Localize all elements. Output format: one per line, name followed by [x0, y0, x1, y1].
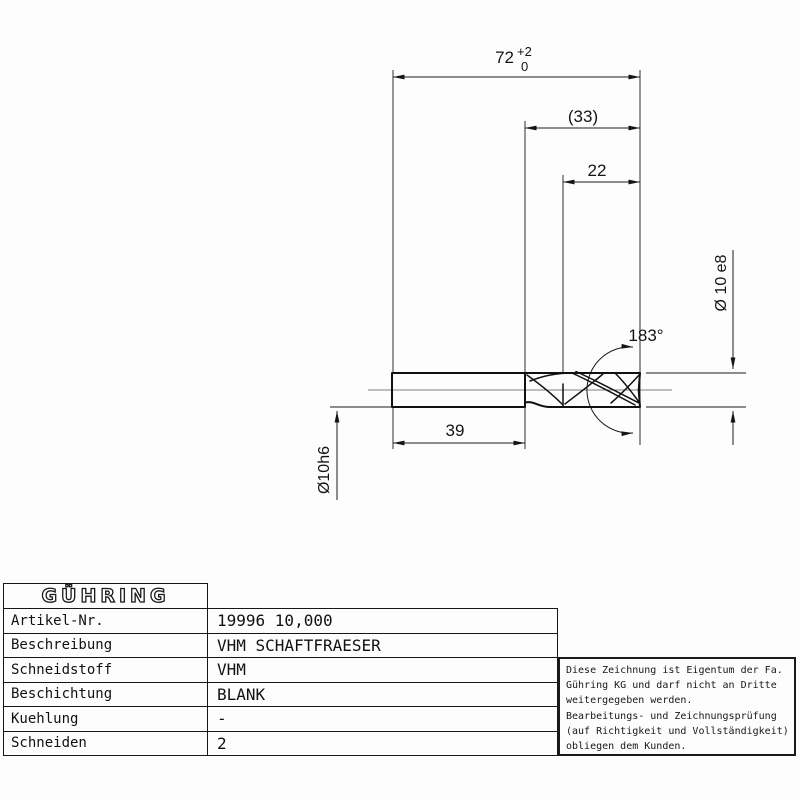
- disclaimer-line: Diese Zeichnung ist Eigentum der Fa.: [566, 663, 792, 678]
- dimension-lines: [337, 77, 733, 500]
- disclaimer-line: (auf Richtigkeit und Vollständigkeit): [566, 724, 792, 739]
- row-label: Kuehlung: [4, 707, 208, 731]
- table-row: Artikel-Nr. 19996 10,000: [4, 609, 557, 633]
- disclaimer-line: Bearbeitungs- und Zeichnungsprüfung: [566, 709, 792, 724]
- row-value: BLANK: [208, 683, 557, 707]
- row-value: VHM SCHAFTFRAESER: [208, 634, 557, 658]
- disclaimer-line: weitergegeben werden.: [566, 693, 792, 708]
- disclaimer-line: Gühring KG und darf nicht an Dritte: [566, 678, 792, 693]
- table-row: Schneidstoff VHM: [4, 657, 557, 682]
- end-mill-drawing: 72 +2 0 (33) 22 39 183° Ø 10 e8 Ø10h6: [0, 0, 800, 580]
- table-row: Kuehlung -: [4, 706, 557, 731]
- manufacturer-logo: GÜHRING: [41, 585, 169, 607]
- disclaimer-line: obliegen dem Kunden.: [566, 739, 792, 754]
- shank-length-label: 39: [446, 421, 465, 440]
- overall-length-tol-upper: +2: [517, 44, 532, 59]
- table-row: Schneiden 2: [4, 731, 557, 756]
- row-value: VHM: [208, 658, 557, 682]
- length-to-shank-label: (33): [568, 107, 598, 126]
- manufacturer-logo-box: GÜHRING: [3, 583, 208, 609]
- row-label: Schneidstoff: [4, 658, 208, 682]
- shank-diameter-label: Ø10h6: [316, 446, 333, 494]
- overall-length-label: 72: [495, 48, 514, 67]
- overall-length-tol-lower: 0: [521, 59, 528, 74]
- row-label: Artikel-Nr.: [4, 609, 208, 633]
- row-value: -: [208, 707, 557, 731]
- row-value: 2: [208, 732, 557, 756]
- flute-helix-lines: [527, 372, 640, 407]
- spec-table: Artikel-Nr. 19996 10,000 Beschreibung VH…: [3, 608, 558, 756]
- drawing-sheet: 72 +2 0 (33) 22 39 183° Ø 10 e8 Ø10h6 GÜ…: [0, 0, 800, 800]
- table-row: Beschichtung BLANK: [4, 682, 557, 707]
- cutting-length-label: 22: [588, 161, 607, 180]
- ownership-disclaimer: Diese Zeichnung ist Eigentum der Fa. Güh…: [558, 657, 796, 756]
- table-row: Beschreibung VHM SCHAFTFRAESER: [4, 633, 557, 658]
- cutting-diameter-label: Ø 10 e8: [713, 254, 730, 311]
- point-angle-label: 183°: [628, 326, 663, 345]
- row-label: Beschreibung: [4, 634, 208, 658]
- row-value: 19996 10,000: [208, 609, 557, 633]
- row-label: Schneiden: [4, 732, 208, 756]
- row-label: Beschichtung: [4, 683, 208, 707]
